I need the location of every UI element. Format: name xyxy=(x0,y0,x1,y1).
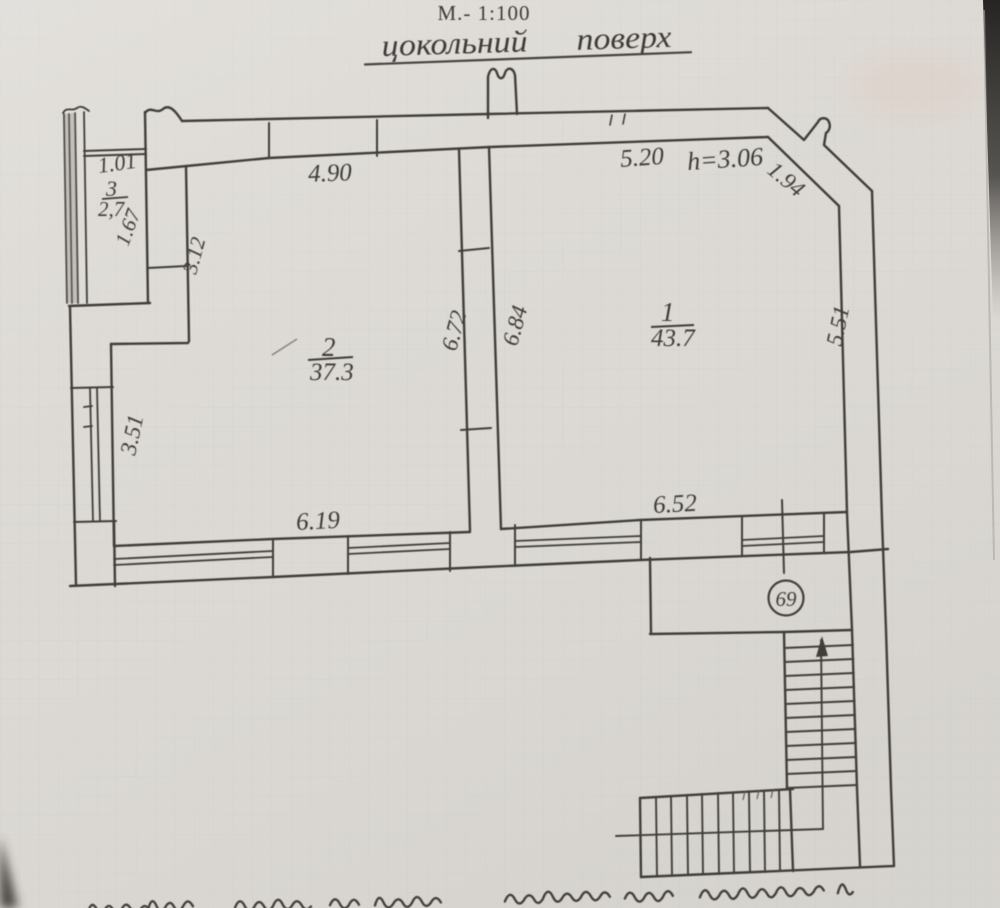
svg-text:цокольний: цокольний xyxy=(381,23,529,63)
svg-text:37.3: 37.3 xyxy=(309,359,354,386)
svg-text:69: 69 xyxy=(776,587,798,611)
svg-text:5.20: 5.20 xyxy=(619,143,665,173)
svg-text:М.- 1:100: М.- 1:100 xyxy=(438,1,531,25)
svg-text:1: 1 xyxy=(661,297,675,327)
svg-text:4.90: 4.90 xyxy=(308,159,353,188)
svg-text:поверх: поверх xyxy=(576,19,672,57)
svg-text:6.52: 6.52 xyxy=(652,490,697,519)
svg-text:6.19: 6.19 xyxy=(295,507,341,536)
svg-text:1.01: 1.01 xyxy=(96,148,138,178)
svg-text:h=3.06: h=3.06 xyxy=(686,142,764,176)
svg-text:43.7: 43.7 xyxy=(651,325,696,352)
